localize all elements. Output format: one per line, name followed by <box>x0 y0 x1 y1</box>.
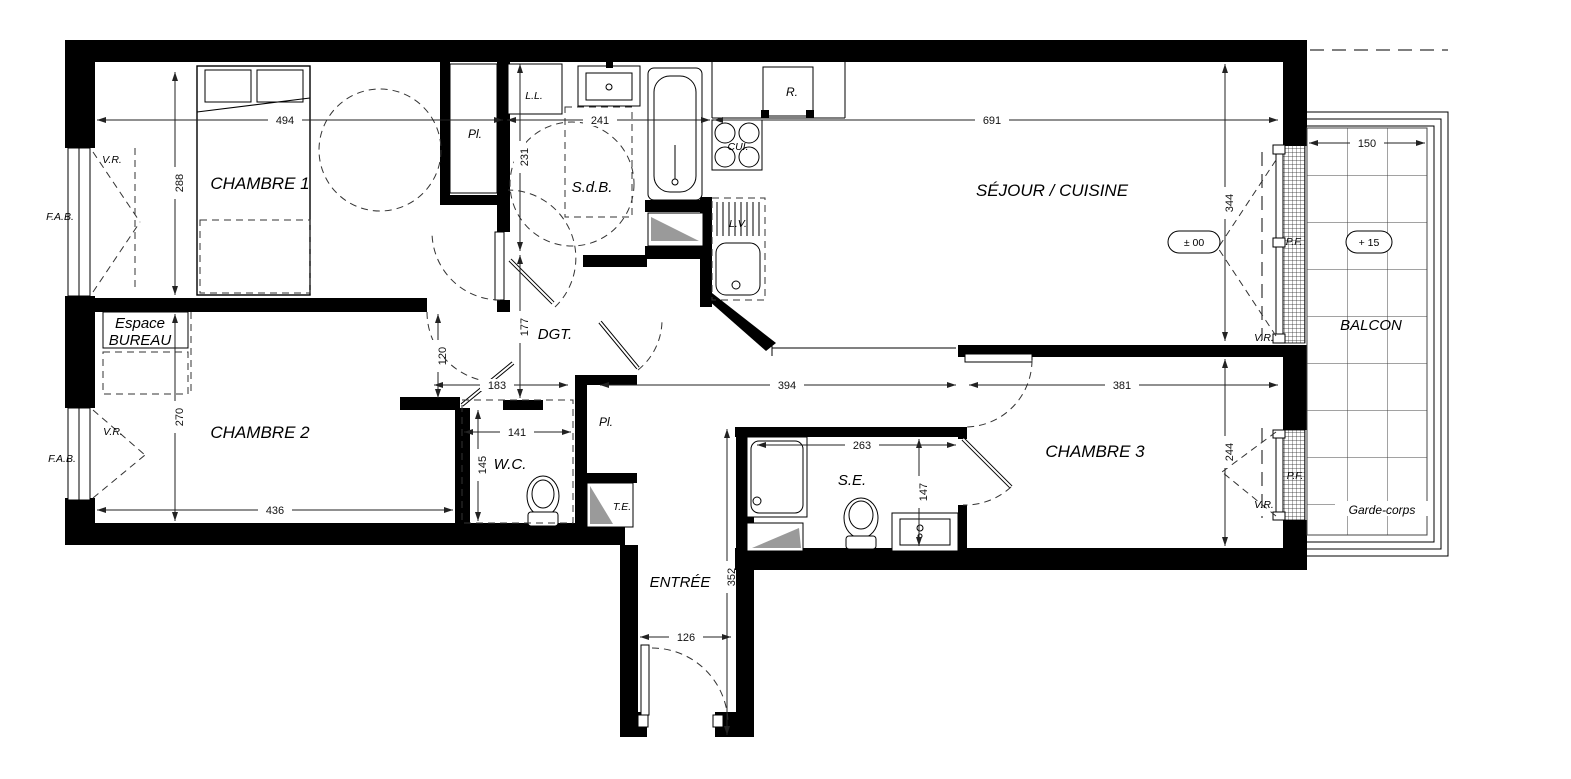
window-vr2-label: V.R. <box>103 426 123 438</box>
shaft-se <box>747 523 803 551</box>
closet-pl2-label: Pl. <box>599 415 613 429</box>
dim-436: 436 <box>266 505 284 517</box>
appliance-r-label: R. <box>786 85 798 99</box>
wc-toilet <box>527 476 559 526</box>
room-label-dgt: DGT. <box>538 326 572 343</box>
shower <box>747 437 807 517</box>
window-pf1-label: P.F. <box>1286 236 1303 248</box>
room-label-chambre1: CHAMBRE 1 <box>210 174 309 193</box>
window-fab-2 <box>68 408 145 500</box>
fridge <box>712 62 845 118</box>
level-balcony-label: + 15 <box>1359 237 1380 249</box>
se-sink <box>892 513 958 551</box>
window-vr3-label: V.R. <box>1254 332 1274 344</box>
dim-381: 381 <box>1113 380 1131 392</box>
appliance-ll-label: L.L. <box>525 90 543 102</box>
dim-244: 244 <box>1224 443 1236 461</box>
balcony <box>1307 50 1448 556</box>
door-se <box>963 439 1011 505</box>
room-label-se: S.E. <box>838 472 866 489</box>
dim-691: 691 <box>983 115 1001 127</box>
window-fab1-label: F.A.B. <box>46 211 74 223</box>
dim-150: 150 <box>1358 138 1376 150</box>
door-chambre1 <box>432 232 504 300</box>
window-vr4-label: V.R. <box>1254 499 1274 511</box>
dim-177: 177 <box>519 318 531 336</box>
floor-plan: 494 241 691 150 183 394 381 141 436 263 … <box>0 0 1571 779</box>
dim-394: 394 <box>778 380 796 392</box>
dim-352: 352 <box>726 568 738 586</box>
room-label-bureau-line1: Espace <box>115 315 165 332</box>
room-label-entree: ENTRÉE <box>650 574 712 591</box>
room-label-sejour: SÉJOUR / CUISINE <box>976 181 1129 200</box>
shaft-sdb <box>648 213 703 246</box>
washing-machine <box>508 64 562 114</box>
room-label-bureau-line2: BUREAU <box>109 332 172 349</box>
level-main-label: ± 00 <box>1184 237 1205 249</box>
dim-120: 120 <box>437 347 449 365</box>
room-label-chambre2: CHAMBRE 2 <box>210 423 310 442</box>
window-fab-1 <box>68 148 140 296</box>
dim-147: 147 <box>918 483 930 501</box>
dim-241: 241 <box>591 115 609 127</box>
door-sdb <box>508 190 576 307</box>
dim-145: 145 <box>477 456 489 474</box>
door-chambre3 <box>965 354 1032 427</box>
bathroom-sink <box>578 62 640 106</box>
dim-344: 344 <box>1224 194 1236 212</box>
dim-141: 141 <box>508 427 526 439</box>
closet-pl1-label: Pl. <box>468 127 482 141</box>
room-label-chambre3: CHAMBRE 3 <box>1045 442 1145 461</box>
door-entree <box>638 645 728 727</box>
door-sejour <box>600 320 662 370</box>
sejour-opening-line <box>772 342 956 356</box>
clearance-circle-chambre1 <box>319 89 441 211</box>
dim-231: 231 <box>519 148 531 166</box>
dim-270: 270 <box>174 408 186 426</box>
se-toilet <box>844 498 878 549</box>
window-vr1-label: V.R. <box>102 154 122 166</box>
room-label-wc: W.C. <box>494 456 527 473</box>
dim-126: 126 <box>677 632 695 644</box>
appliance-lv-label: L.V. <box>729 218 747 230</box>
dim-494: 494 <box>276 115 294 127</box>
dim-183: 183 <box>488 380 506 392</box>
window-pf2-label: P.F. <box>1287 470 1304 482</box>
room-label-balcon: BALCON <box>1340 317 1402 334</box>
level-marker-main: ± 00 <box>1168 231 1220 253</box>
kitchen-sink <box>712 198 765 300</box>
garde-corps-label-group: Garde-corps <box>1335 501 1430 517</box>
dim-288: 288 <box>174 174 186 192</box>
window-fab2-label: F.A.B. <box>48 453 76 465</box>
room-label-sdb: S.d.B. <box>572 179 613 196</box>
appliance-cui-label: CUI. <box>728 141 749 153</box>
garde-corps-label: Garde-corps <box>1349 503 1416 517</box>
bathtub <box>648 68 702 200</box>
closet-te-label: T.E. <box>613 501 631 513</box>
dim-263: 263 <box>853 440 871 452</box>
level-marker-balcony: + 15 <box>1346 231 1392 253</box>
